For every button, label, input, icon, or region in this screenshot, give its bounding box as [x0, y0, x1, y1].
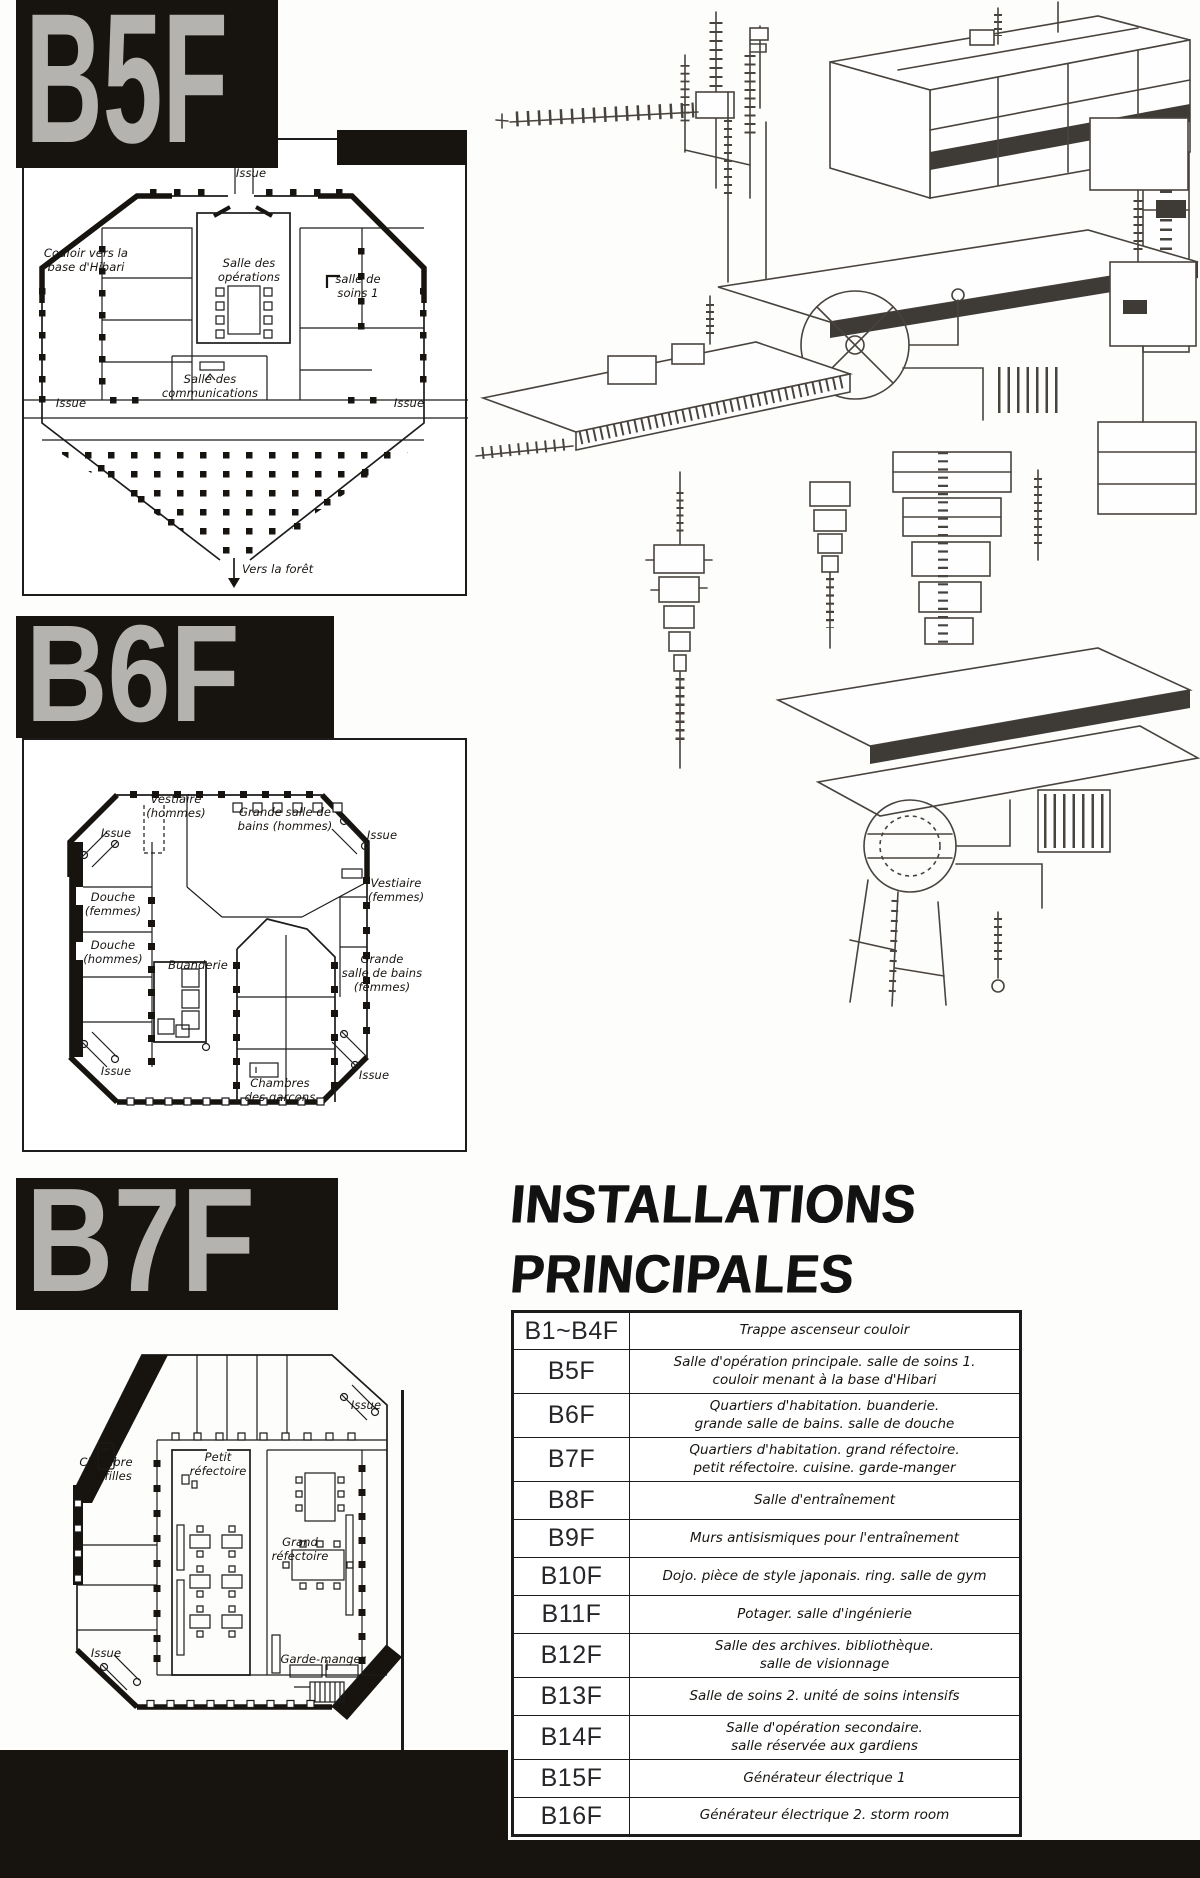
drill-stack-icon [646, 472, 712, 768]
floor-cell: B9F [513, 1520, 630, 1558]
description-cell: Générateur électrique 2. storm room [630, 1798, 1021, 1836]
plan-label-petit-refectoire: Petit réfectoire [172, 1450, 264, 1478]
plan-label-operations: Salle des opérations [208, 256, 290, 284]
floor-cell: B8F [513, 1482, 630, 1520]
description-cell: Salle d'entraînement [630, 1482, 1021, 1520]
drill-stack-icon [810, 482, 850, 648]
floor-cell: B7F [513, 1438, 630, 1482]
plan-label-chambre-filles: Chambre des filles [58, 1455, 154, 1483]
description-cell: Salle de soins 2. unité de soins intensi… [630, 1678, 1021, 1716]
fortress-sketch-illustration [398, 0, 1200, 1010]
floor-cell: B13F [513, 1678, 630, 1716]
platform-icon [476, 296, 850, 456]
plan-label-douche-hommes: Douche (hommes) [72, 938, 154, 966]
table-row: B14FSalle d'opération secondaire. salle … [513, 1716, 1021, 1760]
plan-label-bains-hommes: Grande salle de bains (hommes) [226, 805, 344, 833]
floor-cell: B1~B4F [513, 1312, 630, 1350]
installations-table: B1~B4FTrappe ascenseur couloir B5FSalle … [511, 1310, 1022, 1837]
description-cell: Salle d'opération secondaire. salle rése… [630, 1716, 1021, 1760]
floor-cell: B14F [513, 1716, 630, 1760]
description-cell: Potager. salle d'ingénierie [630, 1596, 1021, 1634]
b5f-floor-plan [22, 138, 468, 596]
plan-label-issue-bottom-left: Issue [82, 1646, 130, 1660]
spiky-boom-icon [496, 110, 698, 128]
bottom-black-strip [0, 1840, 1200, 1878]
plan-label-issue-left: Issue [48, 396, 94, 410]
plan-label-issue-top-right: Issue [342, 1398, 390, 1412]
floor-cell: B12F [513, 1634, 630, 1678]
plan-label-issue-bottom-right: Issue [350, 1068, 398, 1082]
b7f-floor-banner: B7F [16, 1178, 338, 1310]
description-cell: Murs antisismiques pour l'entraînement [630, 1520, 1021, 1558]
plan-label-issue-bottom-left: Issue [92, 1064, 140, 1078]
plan-label-bains-femmes: Grande salle de bains (femmes) [332, 952, 432, 994]
description-cell: Dojo. pièce de style japonais. ring. sal… [630, 1558, 1021, 1596]
floor-cell: B10F [513, 1558, 630, 1596]
table-row: B15FGénérateur électrique 1 [513, 1760, 1021, 1798]
plan-label-issue-top: Issue [228, 166, 274, 180]
table-row: B1~B4FTrappe ascenseur couloir [513, 1312, 1021, 1350]
description-cell: Quartiers d'habitation. buanderie. grand… [630, 1394, 1021, 1438]
b6f-floor-banner: B6F [16, 616, 334, 738]
table-row: B11FPotager. salle d'ingénierie [513, 1596, 1021, 1634]
lower-module-icon [778, 648, 1198, 1006]
table-row: B6FQuartiers d'habitation. buanderie. gr… [513, 1394, 1021, 1438]
dining-tables-icon [190, 1526, 242, 1637]
table-row: B13FSalle de soins 2. unité de soins int… [513, 1678, 1021, 1716]
table-row: B9FMurs antisismiques pour l'entraînemen… [513, 1520, 1021, 1558]
floor-cell: B16F [513, 1798, 630, 1836]
plan-label-garde-manger: Garde-manger [258, 1652, 388, 1666]
plan-label-issue-right: Issue [386, 396, 432, 410]
description-cell: Trappe ascenseur couloir [630, 1312, 1021, 1350]
plan-label-corridor-hibari: Couloir vers la base d'Hibari [30, 246, 142, 274]
plan-label-chambres-garcons: Chambres des garçons [226, 1076, 334, 1104]
plan-label-issue-top-left: Issue [92, 826, 140, 840]
plan-label-communications: Salle des communications [158, 372, 262, 400]
table-row: B8FSalle d'entraînement [513, 1482, 1021, 1520]
table-row: B12FSalle des archives. bibliothèque. sa… [513, 1634, 1021, 1678]
stairs-icon [294, 1660, 344, 1702]
floor-cell: B15F [513, 1760, 630, 1798]
b7f-floor-title: B7F [16, 1178, 280, 1304]
floor-cell: B6F [513, 1394, 630, 1438]
description-cell: Salle d'opération principale. salle de s… [630, 1350, 1021, 1394]
plan-label-to-forest: Vers la forêt [242, 562, 352, 576]
b6f-floor-title: B6F [16, 616, 277, 732]
table-row: B7FQuartiers d'habitation. grand réfecto… [513, 1438, 1021, 1482]
plan-label-vestiaire-femmes: Vestiaire (femmes) [350, 876, 442, 904]
installations-title-line2: PRINCIPALES [508, 1246, 856, 1302]
antenna-cluster-icon [685, 12, 768, 198]
description-cell: Salle des archives. bibliothèque. salle … [630, 1634, 1021, 1678]
floor-cell: B11F [513, 1596, 630, 1634]
scanned-page: B5F Issue [0, 0, 1200, 1878]
stacked-tower-icon [893, 452, 1038, 644]
table-row: B10FDojo. pièce de style japonais. ring.… [513, 1558, 1021, 1596]
plan-label-grand-refectoire: Grand réfectoire [252, 1535, 348, 1563]
b5f-floor-title: B5F [16, 0, 168, 158]
arrow-down-icon [228, 578, 240, 588]
table-row: B16FGénérateur électrique 2. storm room [513, 1798, 1021, 1836]
description-cell: Quartiers d'habitation. grand réfectoire… [630, 1438, 1021, 1482]
description-cell: Générateur électrique 1 [630, 1760, 1021, 1798]
floor-cell: B5F [513, 1350, 630, 1394]
plan-label-care-room: salle de soins 1 [322, 272, 394, 300]
plan-label-douche-femmes: Douche (femmes) [72, 890, 154, 918]
plan-label-buanderie: Buanderie [152, 958, 244, 972]
right-column-modules-icon [1090, 118, 1196, 514]
installations-title-line1: INSTALLATIONS [508, 1176, 918, 1232]
plan-label-vestiaire-hommes: Vestiaire (hommes) [130, 792, 222, 820]
table-row: B5FSalle d'opération principale. salle d… [513, 1350, 1021, 1394]
plan-label-issue-top-right: Issue [358, 828, 406, 842]
